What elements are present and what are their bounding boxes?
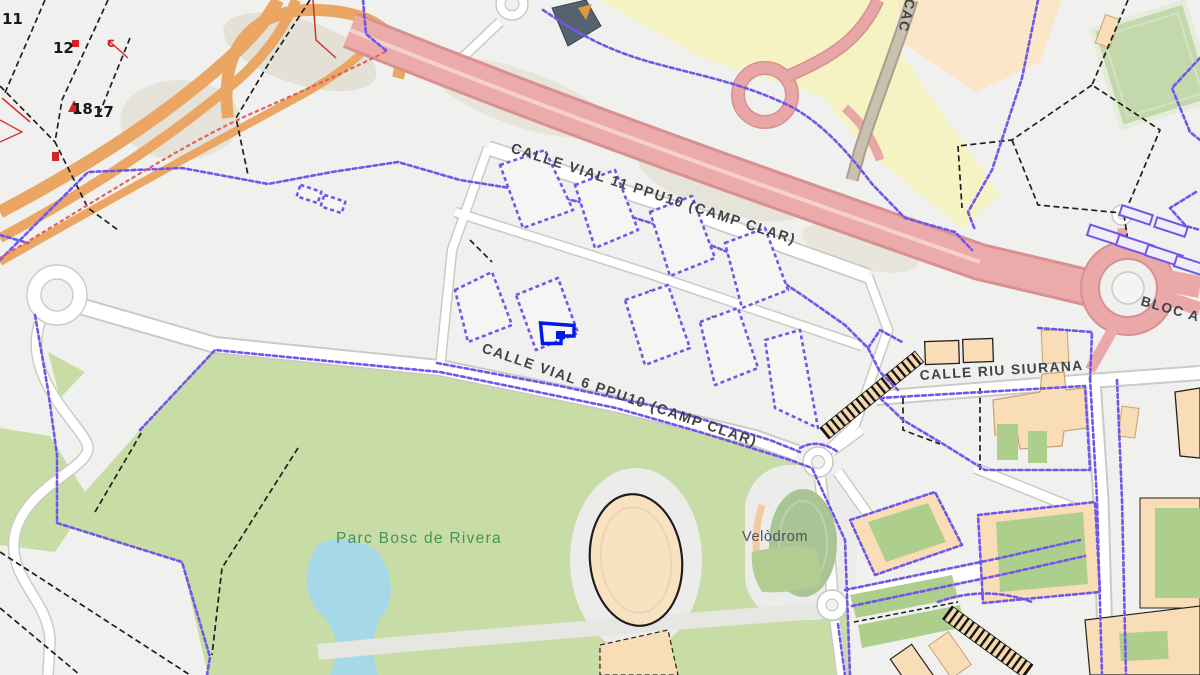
map-canvas[interactable]: CALLE VIAL 11 PPU10 (CAMP CLAR) CALLE VI…	[0, 0, 1200, 675]
parcel-number-11: 11	[2, 10, 23, 28]
parcel-number-18: 18	[72, 100, 93, 118]
red-letter-c: c	[107, 36, 115, 51]
park-label: Parc Bosc de Rivera	[336, 530, 502, 547]
velodrome-label: Velòdrom	[742, 529, 808, 545]
parcel-number-17: 17	[93, 103, 114, 121]
parcel-number-12: 12	[53, 39, 74, 57]
